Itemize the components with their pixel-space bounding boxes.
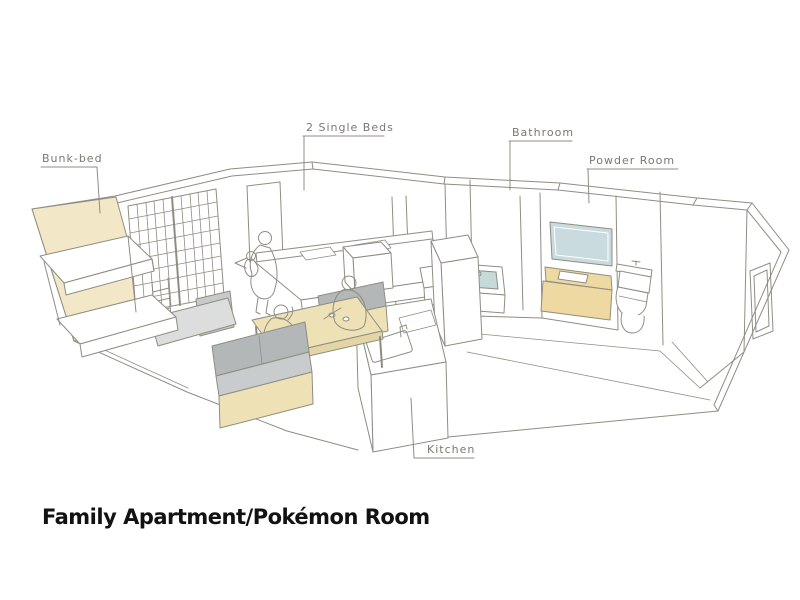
parent-head bbox=[259, 232, 272, 245]
hall-floor-inner bbox=[467, 352, 710, 400]
entrance-door-frame bbox=[750, 263, 773, 339]
table-cup-2 bbox=[343, 317, 349, 321]
label-powder-room: Powder Room bbox=[589, 154, 675, 167]
hall-floor-front bbox=[448, 411, 718, 437]
label-single-beds: 2 Single Beds bbox=[306, 121, 394, 134]
kitchen-tall-unit-front bbox=[441, 257, 482, 346]
large-sofa bbox=[212, 322, 313, 428]
hall-wall-base bbox=[448, 331, 708, 388]
toilet-base bbox=[621, 313, 644, 333]
partition-bath-powder bbox=[520, 193, 542, 318]
label-bathroom: Bathroom bbox=[512, 126, 574, 139]
leader-bathroom bbox=[509, 141, 572, 190]
label-bunk-bed: Bunk-bed bbox=[42, 152, 103, 165]
toilet-flush-button bbox=[632, 261, 640, 265]
leader-single-beds bbox=[303, 136, 384, 190]
label-kitchen: Kitchen bbox=[427, 443, 475, 456]
right-wall-outer bbox=[718, 250, 789, 411]
powder-room bbox=[541, 222, 652, 333]
caption-title: Family Apartment/Pokémon Room bbox=[42, 505, 430, 529]
vanity-mirror bbox=[550, 222, 612, 266]
parent-legs bbox=[256, 298, 270, 315]
kitchen-island-front bbox=[371, 362, 448, 452]
apartment-sketch-page: Bunk-bed 2 Single Beds Bathroom Powder R… bbox=[0, 0, 800, 600]
